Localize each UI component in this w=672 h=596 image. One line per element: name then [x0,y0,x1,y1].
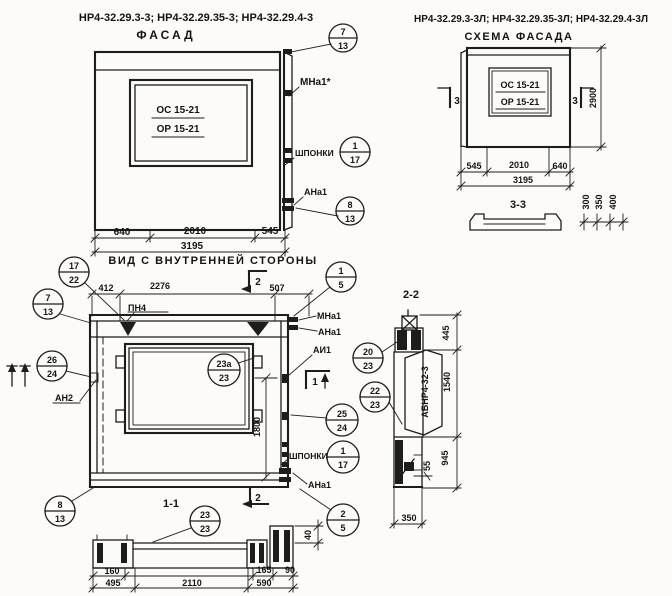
section-1-1: 1-1 23 23 40 [89,498,323,592]
callout-20-23: 20 23 [353,343,383,373]
callout-sheet: 13 [345,214,355,224]
dim-90: 90 [285,565,295,575]
anchor-bracket [282,206,294,211]
section-mark-label: 2 [255,277,261,288]
ai1-clip [282,374,289,383]
label-shponki: ШПОНКИ [289,451,328,461]
scheme-window-mark-bottom: ОР 15-21 [501,97,540,107]
upper-channel [395,328,423,352]
callout-sheet: 23 [363,361,373,371]
mna1-bracket [288,317,298,322]
dim-412: 412 [98,283,113,293]
section-1-1-profile [93,526,293,568]
label-shponki: ШПОНКИ [295,148,334,158]
callout-sheet: 13 [43,307,53,317]
callout-sheet: 22 [69,275,79,285]
label-pn4: ПН4 [128,303,146,313]
corner-key-mark [283,49,292,54]
section-mark-label: 2 [255,493,261,504]
lower-channel [394,437,422,487]
callout-num: 22 [370,386,380,396]
callout-num: 1 [340,446,345,456]
dim-55: 55 [414,461,432,480]
inner-view-title: ВИД С ВНУТРЕННЕЙ СТОРОНЫ [108,254,317,267]
callout-8-13: 8 13 [336,197,364,225]
key-mark [284,148,292,153]
dim-545: 545 [466,161,481,171]
callout-1-17: 1 17 [340,137,370,167]
dim-350: 350 [390,487,426,528]
dim-160: 160 [104,566,119,576]
section-2-2: 2-2 АБНР4-32-3 [390,289,461,528]
section-1-marks-left [7,363,30,386]
plan-window [116,344,262,433]
callout-num: 23 [200,510,210,520]
section-3-3-title: 3-3 [510,199,526,211]
weld-plate-mark [120,322,136,336]
weld-plate-mark [247,322,269,336]
window-height-dimension: 1800 [252,374,277,481]
callout-sheet: 23 [370,400,380,410]
callout-num: 20 [363,347,373,357]
dim-2010: 2010 [509,160,529,170]
scheme-title: СХЕМА ФАСАДА [465,31,574,43]
top-anchor-detail [402,310,417,330]
callout-22-23: 22 23 [360,382,390,412]
section-3-3-dims: 300 350 400 [580,194,628,230]
dim-thickness-40: 40 [295,520,323,550]
section-2-mark-bottom: 2 [242,488,268,508]
dim-2276: 2276 [150,281,170,291]
callout-num: 7 [340,27,345,37]
dim-3195: 3195 [181,241,204,252]
anchor-bracket [279,468,291,474]
dim-1800: 1800 [252,417,262,437]
dim-2010: 2010 [184,226,207,237]
callout-26-24: 26 24 [37,351,67,381]
dim-640: 640 [552,161,567,171]
callout-num: 8 [347,200,352,210]
ana1-bracket [288,325,298,330]
callout-1-5: 1 5 [326,262,356,292]
callout-sheet: 13 [55,514,65,524]
callout-1-17: 1 17 [327,441,359,473]
dim-350-label: 350 [401,513,416,523]
dim-545: 545 [262,226,279,237]
dim-590: 590 [256,578,271,588]
callout-num: 17 [69,261,79,271]
dim-445: 445 [441,325,451,340]
technical-drawing-canvas: НР4-32.29.3-3; НР4-32.29.35-3; НР4-32.29… [0,0,672,596]
dim-165: 165 [256,565,271,575]
section-mark-label: 1 [312,377,318,388]
callout-sheet: 13 [338,41,348,51]
callout-sheet: 5 [340,523,345,533]
dim-300: 300 [581,194,591,209]
dim-2900: 2900 [588,88,598,108]
anchor-bracket [279,477,291,482]
section-3-3: 3-3 300 350 400 [470,194,628,230]
label-an2: АН2 [55,393,73,403]
callout-25-24: 25 24 [326,404,358,436]
facade-scheme: ОС 15-21 ОР 15-21 3 3 2900 [438,44,606,190]
facade-window: ОС 15-21 ОР 15-21 [130,80,252,166]
callout-sheet: 23 [219,373,229,383]
section-1-mark-right: 1 [306,371,329,388]
window-mark-top: ОС 15-21 [156,105,200,116]
facade-marks-title: НР4-32.29.3-3; НР4-32.29.35-3; НР4-32.29… [79,12,313,24]
dim-640: 640 [114,227,131,238]
callout-7-13: 7 13 [33,289,63,319]
callout-17-22: 17 22 [59,257,89,287]
dim-495: 495 [105,578,120,588]
dim-400: 400 [608,194,618,209]
label-mna1: МНа1* [300,77,331,88]
inner-view-plan: ВИД С ВНУТРЕННЕЙ СТОРОНЫ 412 2276 507 2 [7,254,402,536]
label-mna1: МНа1 [317,311,341,321]
section-2-mark-top: 2 [241,271,266,293]
label-ana1-top: АНа1 [318,327,341,337]
callout-sheet: 5 [338,280,343,290]
dim-3195: 3195 [513,175,533,185]
dim-507: 507 [269,283,284,293]
callout-num: 2 [340,509,345,519]
callout-num: 1 [352,141,357,151]
section-1-1-title: 1-1 [163,498,179,510]
callout-sheet: 17 [350,155,360,165]
callout-sheet: 17 [338,460,348,470]
panel-mark: АБНР4-32-3 [420,366,430,418]
callout-num: 26 [47,355,57,365]
callout-sheet: 24 [47,369,57,379]
key-mark [284,90,292,96]
callout-2-5: 2 5 [327,504,359,536]
callout-7-13: 7 13 [329,24,357,52]
callout-num: 7 [45,293,50,303]
dim-1540: 1540 [442,372,452,392]
anchor-bracket [282,198,294,203]
scheme-marks-title: НР4-32.29.3-3Л; НР4-32.29.35-3Л; НР4-32.… [414,14,648,25]
callout-num: 25 [337,409,347,419]
key-mark [282,442,289,447]
label-ana1-bottom: АНа1 [308,480,331,490]
dim-945: 945 [440,450,450,465]
drawing-sheet: НР4-32.29.3-3; НР4-32.29.35-3; НР4-32.29… [0,0,672,596]
section-3-mark-left: 3 [438,88,460,107]
scheme-dimensions: 545 2010 640 3195 [457,147,574,190]
plan-body [90,315,298,487]
key-mark [282,452,289,457]
dim-350: 350 [594,194,604,209]
section-mark-label: 3 [454,96,460,107]
section-2-2-title: 2-2 [403,289,419,301]
wall-clip [282,412,289,420]
window-mark-bottom: ОР 15-21 [157,124,200,135]
section-1-1-dimensions: 160 165 90 495 2110 590 [89,565,298,592]
callout-num: 23а [216,359,232,369]
callout-num: 8 [57,500,62,510]
label-ana1: АНа1 [304,187,327,197]
label-ai1: АИ1 [313,345,331,355]
callout-num: 1 [338,266,343,276]
callout-23a-23: 23а 23 [208,354,240,386]
callout-sheet: 23 [200,524,210,534]
section-mark-label: 3 [572,96,578,107]
callout-sheet: 24 [337,423,347,433]
facade-view: ОС 15-21 ОР 15-21 640 2010 545 3195 МНа1… [91,24,370,256]
callout-23-23: 23 23 [190,506,220,536]
dim-40: 40 [303,530,313,540]
callout-8-13: 8 13 [45,496,75,526]
dim-2110: 2110 [182,578,202,588]
sheet-titles: НР4-32.29.3-3; НР4-32.29.35-3; НР4-32.29… [79,12,648,43]
scheme-window-mark-top: ОС 15-21 [500,80,539,90]
dim-55-label: 55 [422,461,432,471]
facade-title: ФАСАД [136,28,195,42]
